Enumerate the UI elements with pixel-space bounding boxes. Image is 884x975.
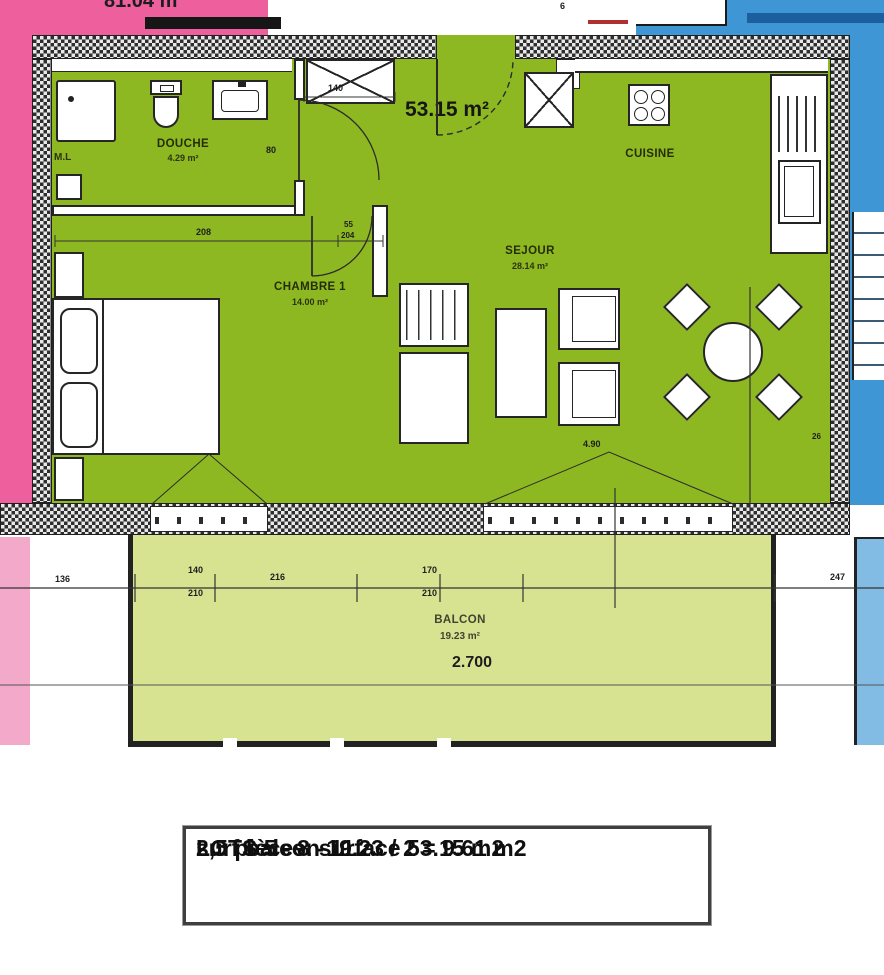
balcony-area: 19.23 m²: [400, 631, 520, 642]
tv-sideboard: [399, 283, 469, 347]
entry-door-opening: [437, 35, 515, 59]
burner: [651, 90, 665, 104]
bathroom-label: DOUCHE: [138, 138, 228, 150]
bathroom-area: 4.29 m²: [138, 153, 228, 163]
balcony-width-dim: 2.700: [452, 655, 492, 671]
coffee-table: [495, 308, 547, 418]
washbasin: [212, 80, 268, 120]
kitchen-sink: [778, 160, 821, 224]
shower-tray: [56, 80, 116, 142]
bedroom-window: [150, 506, 268, 532]
nightstand-top: [54, 252, 84, 298]
toilet-bowl: [153, 96, 179, 128]
armchair-seat: [572, 370, 616, 418]
bathroom-right-partition-lower: [294, 180, 305, 216]
legend-box: LOTS 5 - 8 - 11 2,5 pièces. surface 53.1…: [183, 826, 711, 925]
red-revision-mark: [588, 20, 628, 24]
washbasin-bowl: [221, 90, 259, 112]
wall-top-left: [32, 35, 437, 59]
kitchen-counter-top: [575, 59, 828, 73]
section-mark-bar: [145, 17, 281, 29]
shower-drain: [68, 96, 74, 102]
pillow: [60, 382, 98, 448]
sink-basin: [784, 166, 814, 217]
washbasin-tap: [238, 82, 246, 87]
burner: [634, 107, 648, 121]
blue-apartment-notch: [636, 0, 727, 26]
living-room-label: SEJOUR: [470, 245, 590, 257]
kitchen-counter-right: [770, 74, 828, 254]
entry-closet: [306, 59, 395, 104]
balcony-label: BALCON: [400, 614, 520, 626]
toilet-tank: [150, 80, 182, 95]
cabinet: [399, 352, 469, 444]
toilet-flush: [160, 85, 174, 92]
armchair: [558, 362, 620, 426]
balcony-drain-gap: [330, 738, 344, 748]
bed: [52, 298, 220, 455]
dimension-label: 247: [830, 573, 845, 582]
bathroom-bottom-partition: [52, 205, 304, 216]
window-panes: [488, 517, 728, 524]
neighbor-area-label: 81.04 m²: [104, 0, 184, 11]
washing-machine: [56, 174, 82, 200]
bathroom-counter: [52, 59, 292, 72]
kitchen-label: CUISINE: [595, 148, 705, 160]
dimension-label: 136: [55, 575, 70, 584]
bathroom-right-partition-upper: [294, 59, 305, 100]
washing-machine-label: M.L: [54, 152, 71, 163]
armchair: [558, 288, 620, 350]
wall-top-right: [515, 35, 850, 59]
bed-headboard-line: [102, 300, 104, 453]
bedroom-area: 14.00 m²: [245, 297, 375, 307]
living-room-balcony-door: [483, 506, 733, 532]
neighbor-apartment-pink-left: [0, 36, 32, 503]
legend-balcony-line: surf balcon 19.23 / 2 = 9.61 m2: [196, 833, 526, 863]
neighbor-balcony-pink: [0, 537, 30, 745]
dish-drainer: [778, 96, 822, 152]
living-room-area: 28.14 m²: [470, 261, 590, 271]
floorplan-canvas: 81.04 m² M.L DOUCHE 4.29 m²: [0, 0, 884, 975]
balcony-drain-gap: [437, 738, 451, 748]
window-panes: [155, 517, 263, 524]
burner: [634, 90, 648, 104]
pillow: [60, 308, 98, 374]
neighbor-balcony-blue: [854, 537, 884, 745]
cooktop: [628, 84, 670, 126]
burner: [651, 107, 665, 121]
wall-right: [830, 59, 850, 503]
hall-closet: [524, 72, 574, 128]
bedroom-label: CHAMBRE 1: [245, 281, 375, 293]
neighbor-stairs: [852, 212, 884, 380]
balcony-drain-gap: [223, 738, 237, 748]
dining-table: [703, 322, 763, 382]
blue-apartment-wall-line: [747, 13, 884, 23]
sideboard-shelves: [406, 290, 462, 340]
dimension-label: 6: [560, 2, 565, 11]
nightstand-bottom: [54, 457, 84, 501]
wall-left: [32, 59, 52, 503]
armchair-seat: [572, 296, 616, 342]
apartment-area-label: 53.15 m²: [405, 98, 489, 122]
